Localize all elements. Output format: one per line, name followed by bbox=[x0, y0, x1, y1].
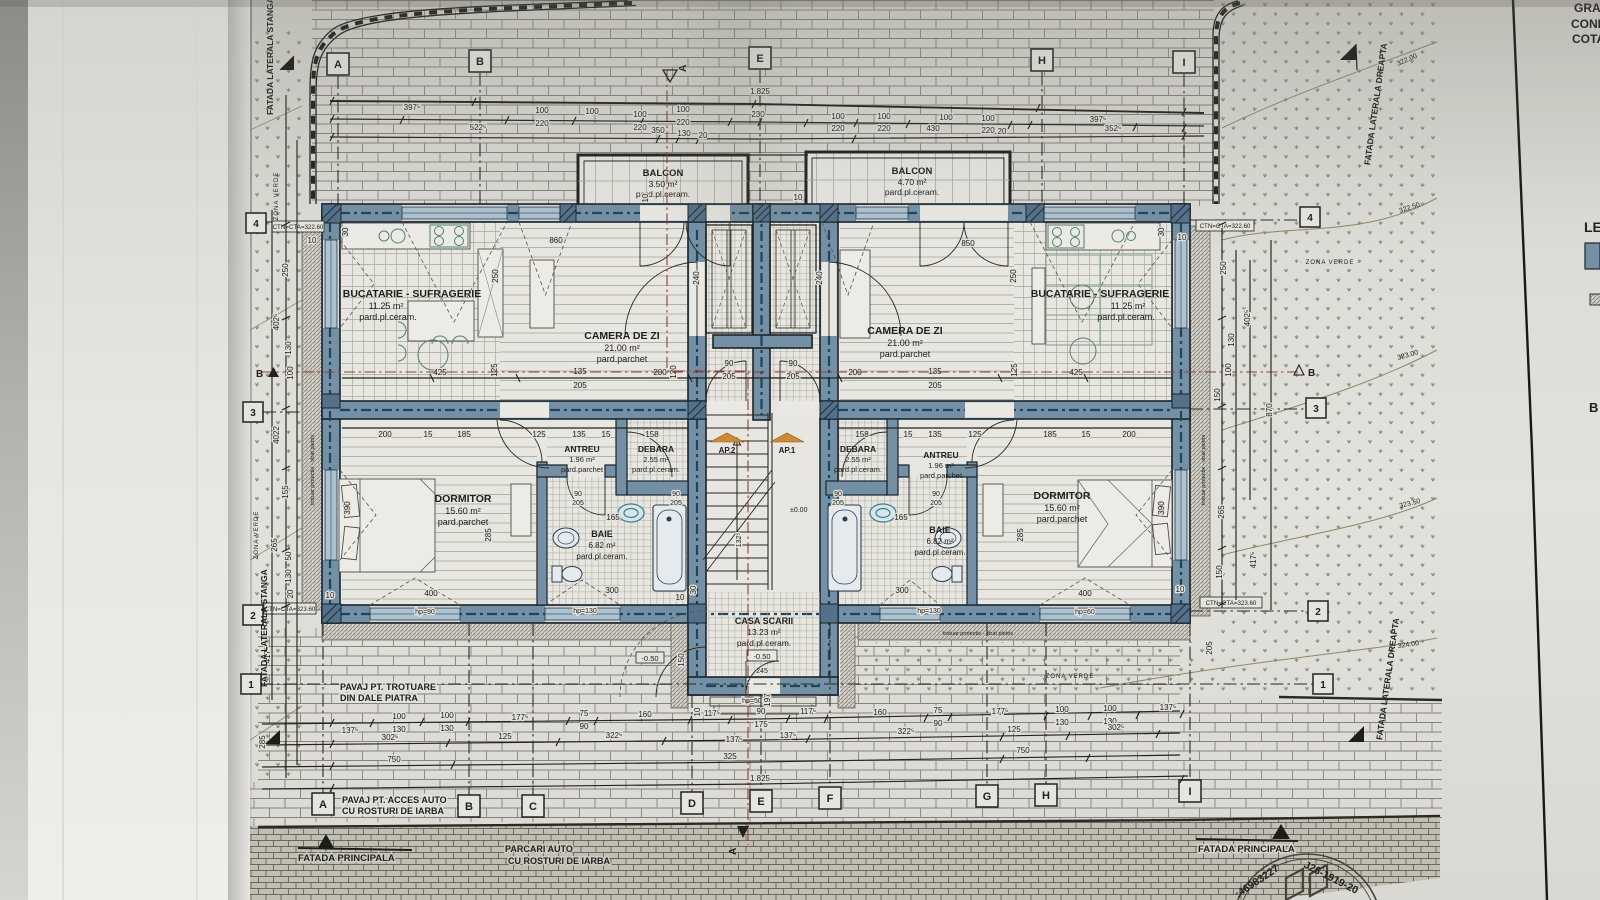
svg-text:125: 125 bbox=[1007, 725, 1021, 734]
svg-text:BAIE: BAIE bbox=[929, 525, 951, 535]
svg-text:130: 130 bbox=[284, 569, 293, 583]
svg-text:pard.parchet: pard.parchet bbox=[597, 354, 648, 364]
svg-text:285: 285 bbox=[1016, 528, 1025, 542]
svg-text:BUCATARIE - SUFRAGERIE: BUCATARIE - SUFRAGERIE bbox=[1031, 288, 1169, 300]
svg-text:2.55 m²: 2.55 m² bbox=[643, 455, 669, 464]
svg-text:265: 265 bbox=[270, 538, 279, 552]
svg-text:417⁵: 417⁵ bbox=[1249, 552, 1258, 569]
svg-text:pard.parchet: pard.parchet bbox=[920, 471, 963, 480]
svg-text:trotuar protectie - strat piet: trotuar protectie - strat pietris bbox=[943, 631, 1014, 637]
svg-text:205: 205 bbox=[722, 372, 736, 381]
svg-text:D: D bbox=[688, 798, 696, 810]
svg-text:FATADA PRINCIPALA: FATADA PRINCIPALA bbox=[1198, 844, 1295, 855]
svg-text:322⁵: 322⁵ bbox=[898, 727, 915, 736]
svg-text:G: G bbox=[983, 791, 992, 803]
svg-text:6.82 m²: 6.82 m² bbox=[588, 541, 615, 550]
svg-text:125: 125 bbox=[532, 430, 546, 439]
svg-text:pard.pl.ceram.: pard.pl.ceram. bbox=[834, 465, 882, 474]
svg-text:137⁵: 137⁵ bbox=[780, 731, 797, 740]
svg-text:177⁵: 177⁵ bbox=[992, 707, 1009, 716]
svg-text:75: 75 bbox=[934, 706, 943, 715]
svg-text:pard.parchet: pard.parchet bbox=[1037, 514, 1088, 524]
svg-text:pard.pl.ceram.: pard.pl.ceram. bbox=[359, 312, 417, 322]
svg-text:390: 390 bbox=[1157, 501, 1166, 515]
svg-text:250: 250 bbox=[491, 269, 500, 283]
svg-text:1.825: 1.825 bbox=[750, 774, 771, 783]
svg-text:10: 10 bbox=[676, 593, 685, 602]
svg-text:205: 205 bbox=[572, 500, 584, 507]
svg-text:100: 100 bbox=[440, 711, 454, 720]
svg-text:90: 90 bbox=[725, 359, 734, 368]
svg-text:325: 325 bbox=[723, 752, 737, 761]
svg-text:B: B bbox=[1308, 368, 1315, 379]
svg-text:-0.50: -0.50 bbox=[753, 652, 770, 661]
svg-text:PAVAJ PT. TROTUARE: PAVAJ PT. TROTUARE bbox=[340, 682, 436, 692]
svg-text:· ZONA VERDE ·: · ZONA VERDE · bbox=[1040, 674, 1100, 680]
svg-text:285: 285 bbox=[258, 735, 267, 749]
svg-text:50: 50 bbox=[284, 551, 293, 560]
svg-text:pard.parchet: pard.parchet bbox=[438, 517, 489, 527]
svg-text:400: 400 bbox=[424, 589, 438, 598]
svg-text:3: 3 bbox=[1313, 404, 1319, 415]
svg-text:ANTREU: ANTREU bbox=[564, 444, 599, 454]
svg-text:117⁵: 117⁵ bbox=[704, 709, 720, 718]
svg-text:pard.parchet: pard.parchet bbox=[880, 349, 931, 359]
svg-text:158: 158 bbox=[855, 430, 869, 439]
svg-text:10: 10 bbox=[693, 707, 702, 716]
svg-text:160: 160 bbox=[638, 710, 652, 719]
svg-text:175: 175 bbox=[754, 720, 768, 729]
svg-text:302⁵: 302⁵ bbox=[1108, 723, 1125, 732]
svg-text:300: 300 bbox=[895, 586, 909, 595]
svg-text:CU ROSTURI DE IARBA: CU ROSTURI DE IARBA bbox=[342, 806, 445, 816]
svg-text:CTN=CTA=323.60: CTN=CTA=323.60 bbox=[1206, 600, 1257, 607]
svg-text:21.00 m²: 21.00 m² bbox=[604, 343, 640, 353]
svg-text:A: A bbox=[319, 799, 327, 811]
svg-text:F: F bbox=[827, 793, 834, 805]
svg-text:CASA SCARII: CASA SCARII bbox=[735, 616, 793, 626]
svg-text:10: 10 bbox=[326, 591, 335, 600]
svg-text:117⁵: 117⁵ bbox=[800, 707, 816, 716]
svg-text:15: 15 bbox=[904, 430, 913, 439]
svg-text:125: 125 bbox=[968, 430, 982, 439]
svg-text:I: I bbox=[1188, 786, 1191, 798]
svg-text:1: 1 bbox=[248, 680, 254, 691]
svg-text:75: 75 bbox=[580, 709, 589, 718]
svg-text:100: 100 bbox=[1055, 705, 1069, 714]
svg-text:C: C bbox=[529, 801, 537, 813]
svg-text:197: 197 bbox=[763, 693, 772, 707]
svg-text:137⁵: 137⁵ bbox=[726, 735, 743, 744]
svg-text:240: 240 bbox=[692, 271, 701, 285]
svg-text:15: 15 bbox=[602, 430, 611, 439]
svg-text:15.60 m²: 15.60 m² bbox=[445, 506, 481, 516]
svg-text:265: 265 bbox=[1217, 505, 1226, 519]
svg-text:402⁵: 402⁵ bbox=[1243, 310, 1252, 327]
svg-text:150: 150 bbox=[677, 653, 686, 667]
svg-text:pard.pl.ceram.: pard.pl.ceram. bbox=[914, 548, 965, 557]
svg-text:pard.pl.ceram.: pard.pl.ceram. bbox=[1097, 312, 1155, 322]
svg-text:2: 2 bbox=[1315, 607, 1321, 618]
svg-text:1: 1 bbox=[1320, 680, 1326, 691]
svg-text:137⁵: 137⁵ bbox=[342, 726, 359, 735]
svg-text:135: 135 bbox=[928, 430, 942, 439]
svg-text:2.55 m²: 2.55 m² bbox=[845, 455, 871, 464]
svg-text:21.00 m²: 21.00 m² bbox=[887, 338, 923, 348]
svg-text:· ZONA VERDE ·: · ZONA VERDE · bbox=[1300, 260, 1360, 266]
svg-text:30: 30 bbox=[689, 585, 698, 594]
svg-text:150: 150 bbox=[1215, 565, 1224, 579]
svg-text:3: 3 bbox=[250, 408, 256, 419]
svg-text:B: B bbox=[256, 369, 263, 380]
svg-text:pard.pl.ceram.: pard.pl.ceram. bbox=[576, 552, 627, 561]
svg-text:CAMERA DE ZI: CAMERA DE ZI bbox=[867, 325, 943, 337]
svg-text:15.60 m²: 15.60 m² bbox=[1044, 503, 1080, 513]
svg-text:130: 130 bbox=[440, 724, 454, 733]
svg-text:2: 2 bbox=[250, 611, 256, 622]
svg-text:90: 90 bbox=[834, 491, 842, 498]
svg-text:200: 200 bbox=[1122, 430, 1136, 439]
svg-text:185: 185 bbox=[457, 430, 471, 439]
svg-text:100: 100 bbox=[1103, 704, 1117, 713]
svg-text:250: 250 bbox=[1219, 261, 1228, 275]
svg-text:205: 205 bbox=[928, 381, 942, 390]
svg-text:125: 125 bbox=[498, 732, 512, 741]
svg-text:165: 165 bbox=[894, 513, 908, 522]
svg-text:pard.parchet: pard.parchet bbox=[561, 465, 604, 474]
svg-text:90: 90 bbox=[789, 359, 798, 368]
svg-text:CAMERA DE ZI: CAMERA DE ZI bbox=[584, 330, 660, 342]
svg-text:125: 125 bbox=[490, 363, 499, 377]
svg-text:E: E bbox=[757, 796, 764, 808]
svg-text:150: 150 bbox=[1213, 388, 1222, 402]
svg-text:hp=60: hp=60 bbox=[1075, 609, 1095, 616]
svg-text:205: 205 bbox=[573, 381, 587, 390]
svg-text:hp=90: hp=90 bbox=[415, 609, 435, 616]
svg-text:B: B bbox=[465, 801, 473, 813]
svg-text:ZONA VERDE: ZONA VERDE bbox=[254, 511, 260, 560]
svg-text:200: 200 bbox=[378, 430, 392, 439]
svg-text:15: 15 bbox=[424, 430, 433, 439]
svg-text:CU ROSTURI DE IARBA: CU ROSTURI DE IARBA bbox=[508, 856, 611, 866]
svg-text:DORMITOR: DORMITOR bbox=[1034, 490, 1091, 502]
svg-text:137⁵: 137⁵ bbox=[1160, 703, 1177, 712]
svg-text:BUCATARIE - SUFRAGERIE: BUCATARIE - SUFRAGERIE bbox=[343, 288, 481, 300]
svg-text:130: 130 bbox=[284, 341, 293, 355]
svg-text:750: 750 bbox=[1016, 746, 1030, 755]
svg-text:402⁵: 402⁵ bbox=[272, 314, 281, 331]
svg-text:160: 160 bbox=[873, 708, 887, 717]
svg-text:20: 20 bbox=[286, 589, 295, 598]
svg-text:90: 90 bbox=[932, 491, 940, 498]
svg-text:90: 90 bbox=[934, 719, 943, 728]
svg-text:PAVAJ PT. ACCES AUTO: PAVAJ PT. ACCES AUTO bbox=[342, 795, 447, 805]
svg-text:302⁵: 302⁵ bbox=[382, 733, 399, 742]
svg-text:13.23 m²: 13.23 m² bbox=[747, 627, 781, 637]
svg-text:400: 400 bbox=[1078, 589, 1092, 598]
svg-text:322⁵: 322⁵ bbox=[606, 731, 623, 740]
svg-text:trotuar protectie - strat piet: trotuar protectie - strat pietris bbox=[310, 435, 316, 506]
svg-text:165: 165 bbox=[606, 513, 620, 522]
svg-text:205: 205 bbox=[670, 500, 682, 507]
svg-text:300: 300 bbox=[605, 586, 619, 595]
svg-text:177⁵: 177⁵ bbox=[512, 713, 529, 722]
svg-text:250: 250 bbox=[281, 263, 290, 277]
svg-text:DORMITOR: DORMITOR bbox=[435, 493, 492, 505]
svg-text:100: 100 bbox=[286, 366, 295, 380]
svg-text:90: 90 bbox=[672, 491, 680, 498]
svg-text:90: 90 bbox=[757, 707, 766, 716]
svg-text:1.96 m²: 1.96 m² bbox=[928, 461, 954, 470]
svg-text:pard.pl.ceram.: pard.pl.ceram. bbox=[737, 638, 791, 648]
svg-text:ANTREU: ANTREU bbox=[923, 450, 958, 460]
svg-text:±0.00: ±0.00 bbox=[790, 507, 808, 514]
svg-text:90: 90 bbox=[574, 491, 582, 498]
svg-text:205: 205 bbox=[786, 372, 800, 381]
svg-text:DEBARA: DEBARA bbox=[840, 444, 876, 454]
svg-text:15: 15 bbox=[1082, 430, 1091, 439]
svg-text:155: 155 bbox=[281, 485, 290, 499]
svg-text:185: 185 bbox=[1043, 430, 1057, 439]
svg-text:pard.pl.ceram.: pard.pl.ceram. bbox=[632, 465, 680, 474]
svg-text:AP.1: AP.1 bbox=[779, 446, 796, 455]
svg-text:100: 100 bbox=[1224, 363, 1233, 377]
svg-text:250: 250 bbox=[1009, 269, 1018, 283]
svg-text:240: 240 bbox=[815, 271, 824, 285]
svg-text:205: 205 bbox=[930, 500, 942, 507]
svg-text:H: H bbox=[1042, 790, 1050, 802]
svg-text:BAIE: BAIE bbox=[591, 529, 613, 539]
svg-text:6.82 m²: 6.82 m² bbox=[926, 537, 953, 546]
svg-text:trotuar protectie - strat piet: trotuar protectie - strat pietris bbox=[1201, 435, 1207, 506]
svg-text:870: 870 bbox=[1265, 403, 1274, 417]
svg-text:90: 90 bbox=[580, 722, 589, 731]
svg-text:FATADA PRINCIPALA: FATADA PRINCIPALA bbox=[298, 853, 395, 864]
svg-text:FATADA LATERALA STANGA: FATADA LATERALA STANGA bbox=[259, 569, 269, 687]
svg-text:AP.2: AP.2 bbox=[719, 446, 736, 455]
svg-text:750: 750 bbox=[387, 755, 401, 764]
svg-text:130: 130 bbox=[1055, 718, 1069, 727]
svg-text:DIN DALE PIATRA: DIN DALE PIATRA bbox=[340, 693, 418, 703]
svg-text:158: 158 bbox=[645, 430, 659, 439]
svg-text:205: 205 bbox=[832, 500, 844, 507]
svg-text:PARCARI AUTO: PARCARI AUTO bbox=[505, 844, 573, 854]
svg-text:DEBARA: DEBARA bbox=[638, 444, 674, 454]
svg-text:10: 10 bbox=[1176, 585, 1185, 594]
svg-text:100: 100 bbox=[392, 712, 406, 721]
svg-text:205: 205 bbox=[1205, 641, 1214, 655]
svg-text:A: A bbox=[728, 848, 739, 855]
svg-text:130: 130 bbox=[1227, 333, 1236, 347]
svg-text:hp=130: hp=130 bbox=[917, 608, 941, 615]
svg-text:-0.50: -0.50 bbox=[641, 654, 658, 663]
svg-text:125: 125 bbox=[1010, 363, 1019, 377]
svg-text:11.25 m²: 11.25 m² bbox=[369, 301, 404, 311]
svg-text:135: 135 bbox=[572, 430, 586, 439]
svg-text:285: 285 bbox=[484, 528, 493, 542]
svg-text:11.25 m²: 11.25 m² bbox=[1111, 301, 1146, 311]
svg-text:hp=50: hp=50 bbox=[742, 698, 762, 705]
svg-text:hp=130: hp=130 bbox=[573, 608, 597, 615]
svg-text:B: B bbox=[1589, 400, 1598, 415]
svg-text:1.96 m²: 1.96 m² bbox=[569, 455, 595, 464]
svg-text:132⁵: 132⁵ bbox=[736, 533, 743, 548]
svg-text:4022: 4022 bbox=[272, 426, 281, 444]
svg-text:390: 390 bbox=[343, 501, 352, 515]
